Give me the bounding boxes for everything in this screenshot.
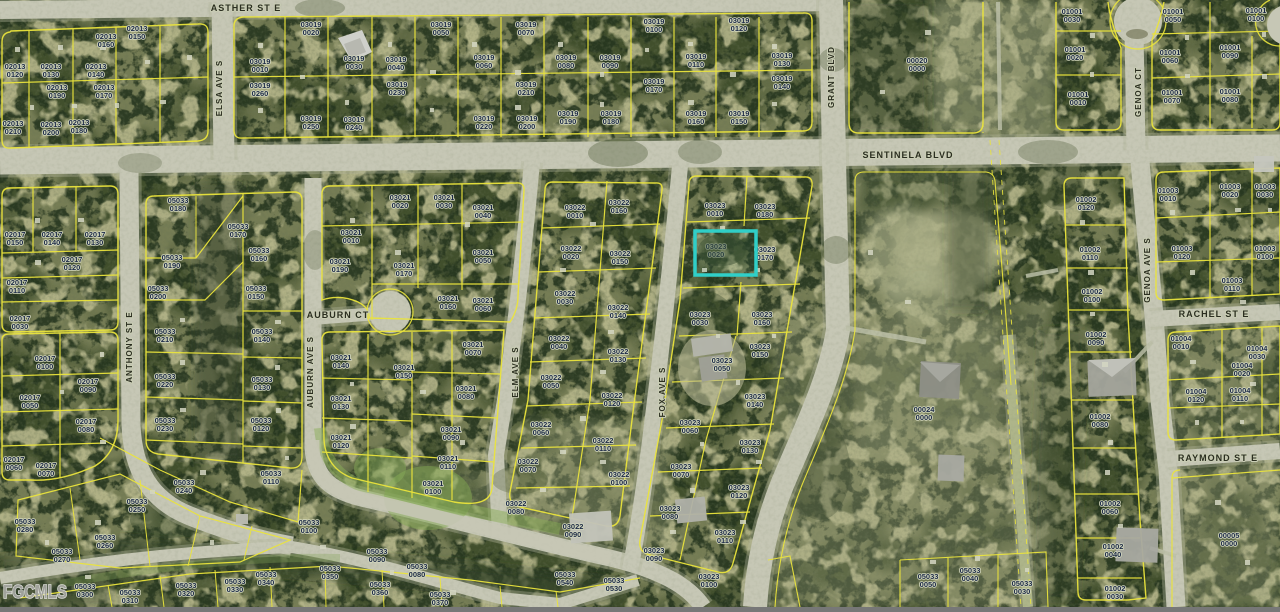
- svg-text:020130200: 020130200: [41, 120, 62, 137]
- svg-text:010030100: 010030100: [1255, 244, 1276, 261]
- svg-text:020170060: 020170060: [4, 455, 25, 472]
- svg-text:030190220: 030190220: [474, 114, 495, 131]
- svg-text:010020060: 010020060: [1100, 499, 1121, 516]
- svg-text:030220020: 030220020: [561, 244, 582, 261]
- svg-text:020130150: 020130150: [127, 24, 148, 41]
- svg-text:030220060: 030220060: [531, 420, 552, 437]
- svg-text:020130120: 020130120: [5, 62, 26, 79]
- svg-text:030190130: 030190130: [772, 51, 793, 68]
- svg-text:030190180: 030190180: [601, 109, 622, 126]
- svg-text:050330240: 050330240: [174, 478, 195, 495]
- svg-text:030210140: 030210140: [331, 353, 352, 370]
- svg-text:050330130: 050330130: [252, 375, 273, 392]
- svg-text:010040110: 010040110: [1230, 386, 1252, 403]
- svg-text:030210110: 030210110: [438, 454, 459, 471]
- svg-text:010010070: 010010070: [1162, 88, 1183, 105]
- svg-text:010040010: 010040010: [1171, 334, 1193, 351]
- svg-text:020170070: 020170070: [36, 461, 57, 478]
- svg-text:050330170: 050330170: [228, 222, 249, 239]
- svg-text:030230100: 030230100: [699, 572, 720, 589]
- svg-text:000240000: 000240000: [914, 405, 936, 422]
- svg-text:050330160: 050330160: [249, 246, 270, 263]
- svg-text:030190230: 030190230: [387, 80, 408, 97]
- svg-text:050330190: 050330190: [162, 253, 183, 270]
- svg-text:030210170: 030210170: [394, 261, 415, 278]
- svg-text:010020120: 010020120: [1076, 195, 1097, 212]
- svg-text:010020100: 010020100: [1082, 287, 1103, 304]
- svg-text:030220010: 030220010: [565, 203, 586, 220]
- svg-text:030220050: 030220050: [541, 373, 562, 390]
- svg-text:030230030: 030230030: [690, 310, 711, 327]
- svg-text:050330280: 050330280: [15, 517, 36, 534]
- svg-text:030210010: 030210010: [341, 228, 362, 245]
- svg-text:020130160: 020130160: [96, 32, 117, 49]
- svg-text:010030030: 010030030: [1255, 182, 1276, 199]
- svg-text:030210080: 030210080: [456, 384, 477, 401]
- svg-text:010010050: 010010050: [1163, 7, 1184, 24]
- svg-text:020170030: 020170030: [10, 314, 31, 331]
- svg-text:030220070: 030220070: [518, 457, 539, 474]
- svg-text:000050000: 000050000: [1219, 531, 1240, 548]
- svg-text:050330300: 050330300: [75, 582, 96, 599]
- svg-text:030210160: 030210160: [438, 294, 459, 311]
- svg-text:030230140: 030230140: [745, 392, 766, 409]
- svg-text:050330350: 050330350: [320, 564, 341, 581]
- svg-text:050330080: 050330080: [407, 562, 428, 579]
- svg-text:030210060: 030210060: [473, 296, 494, 313]
- svg-text:050330110: 050330110: [261, 469, 282, 486]
- svg-text:030230090: 030230090: [644, 546, 665, 563]
- svg-text:050330100: 050330100: [299, 518, 320, 535]
- svg-text:AUBURN CT: AUBURN CT: [307, 310, 370, 320]
- svg-text:030190100: 030190100: [644, 17, 665, 34]
- svg-text:010020040: 010020040: [1103, 542, 1124, 559]
- svg-text:030210070: 030210070: [463, 340, 484, 357]
- svg-text:020170140: 020170140: [42, 230, 63, 247]
- svg-text:030210100: 030210100: [423, 479, 444, 496]
- svg-text:030190160: 030190160: [686, 109, 707, 126]
- svg-text:030220130: 030220130: [608, 347, 629, 364]
- svg-text:020130170: 020130170: [94, 83, 115, 100]
- svg-text:030220090: 030220090: [563, 522, 584, 539]
- svg-text:000200000: 000200000: [907, 56, 928, 73]
- svg-text:010040030: 010040030: [1247, 344, 1269, 361]
- svg-text:030190030: 030190030: [344, 54, 365, 71]
- svg-text:FGCMLS: FGCMLS: [3, 582, 67, 602]
- svg-text:ELM AVE S: ELM AVE S: [511, 346, 520, 397]
- svg-text:010030120: 010030120: [1172, 244, 1193, 261]
- svg-text:030210030: 030210030: [434, 193, 455, 210]
- svg-text:030220030: 030220030: [555, 289, 576, 306]
- svg-text:010010010: 010010010: [1068, 90, 1089, 107]
- svg-text:030190080: 030190080: [556, 53, 577, 70]
- svg-text:020130140: 020130140: [86, 62, 107, 79]
- svg-text:030230150: 030230150: [750, 342, 771, 359]
- svg-text:020170110: 020170110: [7, 278, 28, 295]
- svg-text:020130190: 020130190: [47, 83, 68, 100]
- svg-text:050330370: 050330370: [430, 590, 451, 607]
- svg-text:050330050: 050330050: [918, 572, 939, 589]
- svg-text:050330320: 050330320: [176, 581, 197, 598]
- svg-text:030190150: 030190150: [729, 109, 750, 126]
- svg-text:010030110: 010030110: [1222, 276, 1243, 293]
- svg-text:050330120: 050330120: [251, 416, 272, 433]
- svg-text:010020090: 010020090: [1086, 330, 1107, 347]
- svg-text:030190140: 030190140: [772, 74, 793, 91]
- svg-text:020170080: 020170080: [76, 417, 97, 434]
- svg-text:050330530: 050330530: [604, 576, 625, 593]
- svg-text:030190240: 030190240: [344, 115, 365, 132]
- svg-text:050330030: 050330030: [1012, 579, 1033, 596]
- svg-text:010010090: 010010090: [1220, 43, 1241, 60]
- svg-text:030230070: 030230070: [671, 462, 692, 479]
- svg-text:050330230: 050330230: [155, 416, 176, 433]
- svg-text:030220080: 030220080: [506, 499, 527, 516]
- svg-text:030190110: 030190110: [686, 52, 707, 69]
- svg-text:050330200: 050330200: [148, 284, 169, 301]
- svg-text:RACHEL ST E: RACHEL ST E: [1179, 309, 1250, 319]
- svg-text:050330270: 050330270: [52, 547, 73, 564]
- svg-text:010020030: 010020030: [1105, 584, 1126, 601]
- svg-text:010010060: 010010060: [1160, 48, 1181, 65]
- svg-text:030230050: 030230050: [712, 356, 733, 373]
- svg-text:030190070: 030190070: [516, 20, 537, 37]
- svg-text:030230060: 030230060: [680, 418, 701, 435]
- svg-text:020130210: 020130210: [3, 119, 24, 136]
- svg-text:030230010: 030230010: [705, 201, 726, 218]
- svg-text:010040020: 010040020: [1232, 361, 1254, 378]
- svg-text:030230130: 030230130: [740, 438, 761, 455]
- svg-text:050330540: 050330540: [555, 570, 576, 587]
- svg-text:010010030: 010010030: [1062, 7, 1083, 24]
- svg-text:050330140: 050330140: [252, 327, 273, 344]
- svg-text:030220110: 030220110: [593, 436, 614, 453]
- svg-text:030190190: 030190190: [558, 109, 579, 126]
- svg-text:020170130: 020170130: [85, 230, 106, 247]
- svg-text:ANTHONY ST E: ANTHONY ST E: [125, 311, 134, 382]
- svg-text:030190020: 030190020: [301, 20, 322, 37]
- svg-text:020170100: 020170100: [35, 354, 56, 371]
- svg-text:030230160: 030230160: [752, 310, 773, 327]
- svg-text:010040120: 010040120: [1186, 387, 1208, 404]
- svg-text:020130130: 020130130: [41, 62, 62, 79]
- svg-text:010020110: 010020110: [1080, 245, 1101, 262]
- svg-text:050330360: 050330360: [370, 580, 391, 597]
- svg-text:050330150: 050330150: [246, 284, 267, 301]
- svg-text:030210120: 030210120: [331, 433, 352, 450]
- svg-text:030210040: 030210040: [473, 203, 494, 220]
- svg-text:050330180: 050330180: [168, 196, 189, 213]
- svg-text:030220040: 030220040: [549, 334, 570, 351]
- svg-text:030220150: 030220150: [610, 249, 631, 266]
- svg-text:050330260: 050330260: [95, 533, 116, 550]
- svg-text:030210190: 030210190: [330, 257, 351, 274]
- svg-text:030190200: 030190200: [517, 114, 538, 131]
- svg-text:030190040: 030190040: [386, 55, 407, 72]
- svg-text:SENTINELA BLVD: SENTINELA BLVD: [862, 150, 953, 160]
- svg-text:050330330: 050330330: [225, 577, 246, 594]
- svg-text:010030010: 010030010: [1158, 186, 1179, 203]
- svg-text:020170120: 020170120: [62, 255, 83, 272]
- svg-text:030230180: 030230180: [755, 202, 776, 219]
- svg-text:030220160: 030220160: [609, 198, 630, 215]
- svg-text:050330310: 050330310: [120, 588, 141, 605]
- svg-text:050330090: 050330090: [367, 547, 388, 564]
- svg-text:010010080: 010010080: [1220, 87, 1241, 104]
- svg-text:030190170: 030190170: [644, 77, 665, 94]
- svg-text:030190060: 030190060: [474, 53, 495, 70]
- svg-text:020170090: 020170090: [78, 377, 99, 394]
- svg-text:030210090: 030210090: [441, 425, 462, 442]
- svg-text:FOX AVE S: FOX AVE S: [658, 367, 667, 418]
- svg-text:020170050: 020170050: [20, 393, 41, 410]
- svg-text:020130180: 020130180: [69, 118, 90, 135]
- svg-text:RAYMOND ST E: RAYMOND ST E: [1178, 453, 1258, 463]
- svg-text:GENOA AVE S: GENOA AVE S: [1143, 237, 1152, 302]
- svg-text:050330340: 050330340: [256, 570, 277, 587]
- svg-text:010010020: 010010020: [1065, 45, 1086, 62]
- svg-text:030210050: 030210050: [473, 248, 494, 265]
- svg-text:030210020: 030210020: [390, 193, 411, 210]
- svg-text:050330220: 050330220: [155, 372, 176, 389]
- svg-text:GENOA CT: GENOA CT: [1134, 67, 1143, 117]
- svg-text:030220120: 030220120: [602, 391, 623, 408]
- svg-text:030190010: 030190010: [250, 57, 271, 74]
- svg-text:030190210: 030190210: [516, 80, 537, 97]
- svg-text:020170150: 020170150: [5, 230, 26, 247]
- svg-text:GRANT BLVD: GRANT BLVD: [827, 46, 836, 108]
- svg-text:030220100: 030220100: [609, 470, 630, 487]
- svg-text:030190090: 030190090: [600, 53, 621, 70]
- svg-text:010010100: 010010100: [1246, 6, 1267, 23]
- svg-text:050330250: 050330250: [127, 497, 148, 514]
- svg-text:030190120: 030190120: [729, 16, 750, 33]
- svg-text:ELSA AVE S: ELSA AVE S: [215, 60, 224, 116]
- svg-text:010030020: 010030020: [1220, 182, 1241, 199]
- svg-text:030230120: 030230120: [729, 483, 750, 500]
- svg-text:030210130: 030210130: [331, 394, 352, 411]
- svg-text:030220140: 030220140: [608, 303, 629, 320]
- svg-text:030230080: 030230080: [660, 504, 681, 521]
- svg-text:030230110: 030230110: [715, 528, 736, 545]
- svg-text:030190260: 030190260: [250, 81, 271, 98]
- svg-text:030190250: 030190250: [301, 114, 322, 131]
- svg-text:010020080: 010020080: [1090, 412, 1111, 429]
- svg-text:050330040: 050330040: [960, 566, 981, 583]
- svg-text:050330210: 050330210: [155, 327, 176, 344]
- svg-text:ASTHER ST E: ASTHER ST E: [211, 3, 282, 13]
- svg-text:030210150: 030210150: [394, 363, 415, 380]
- svg-text:030190050: 030190050: [431, 20, 452, 37]
- svg-text:AUBURN AVE S: AUBURN AVE S: [306, 336, 315, 408]
